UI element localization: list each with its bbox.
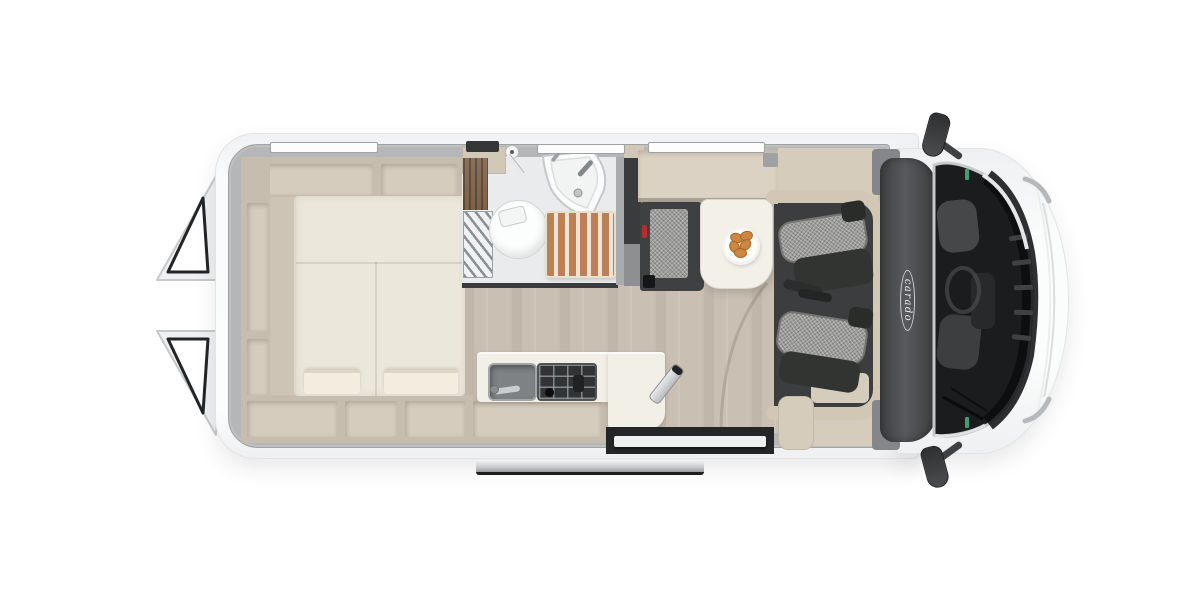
shelf-compartment <box>247 203 268 331</box>
rear-wall-shelf <box>241 157 270 433</box>
roof-vent <box>466 141 499 152</box>
shower-teak-grate <box>545 211 616 278</box>
two-burner-hob <box>537 363 597 401</box>
bath-roof-window <box>537 144 625 154</box>
bench-bracket <box>643 275 655 288</box>
van-floorplan-canvas: carado <box>0 0 1200 600</box>
swivelled-driver-seat <box>767 291 876 397</box>
sliding-door-rail <box>476 460 704 475</box>
locker-compartment <box>473 401 601 437</box>
dining-table <box>700 199 773 289</box>
lower-storage-lockers <box>241 395 607 443</box>
windshield-sticker <box>965 417 969 428</box>
locker-compartment <box>405 401 465 437</box>
headlight-bottom <box>1025 399 1049 421</box>
double-bed-mattress <box>294 196 465 396</box>
wardrobe-wood-panel <box>463 158 488 210</box>
slim-cabinet-lower <box>624 244 641 286</box>
entry-doorway <box>606 427 774 454</box>
bed-pillow <box>384 370 458 394</box>
hob-burner <box>545 388 554 397</box>
locker-compartment <box>247 401 337 437</box>
shower-head-dot <box>510 150 514 154</box>
toilet-lid-detail <box>497 205 527 228</box>
speaker-block <box>763 153 778 167</box>
hob-kettle <box>573 375 584 392</box>
entry-step <box>614 436 766 447</box>
mattress-seam <box>296 262 465 264</box>
kitchen-faucet-base <box>490 385 499 394</box>
brand-logo: carado <box>901 269 916 330</box>
folding-shower-screen <box>463 211 493 278</box>
bench-cushion <box>650 209 688 278</box>
floor-arc-line <box>721 283 767 427</box>
center-console <box>971 273 995 329</box>
cab-seat-silhouette <box>935 198 980 254</box>
windshield-sticker <box>965 169 969 180</box>
rear-roof-window <box>270 142 378 153</box>
seat-headrest <box>847 306 874 330</box>
dinette-roof-window <box>648 142 765 153</box>
mattress-seam <box>375 262 377 396</box>
kitchen-sink <box>488 363 537 401</box>
breakfast-plate <box>722 227 760 265</box>
bed-pillow <box>304 370 360 394</box>
trim-end-top <box>766 190 778 204</box>
rear-door-lower-window-frame <box>168 339 208 413</box>
seatbelt-buckle <box>642 225 647 238</box>
trim-end-bottom <box>766 406 778 420</box>
cab-front <box>925 145 1070 455</box>
shelf-compartment <box>247 339 268 395</box>
seat-end-panel <box>778 396 814 450</box>
locker-compartment <box>345 401 397 437</box>
bathroom-threshold <box>462 283 618 288</box>
overhead-cabinet <box>638 150 778 202</box>
shelf-compartment <box>381 164 457 195</box>
seat-headrest <box>840 200 867 224</box>
bed-head-shelf <box>241 157 463 197</box>
rear-door-upper-window-frame <box>168 198 208 272</box>
washbasin-drain <box>574 189 582 197</box>
